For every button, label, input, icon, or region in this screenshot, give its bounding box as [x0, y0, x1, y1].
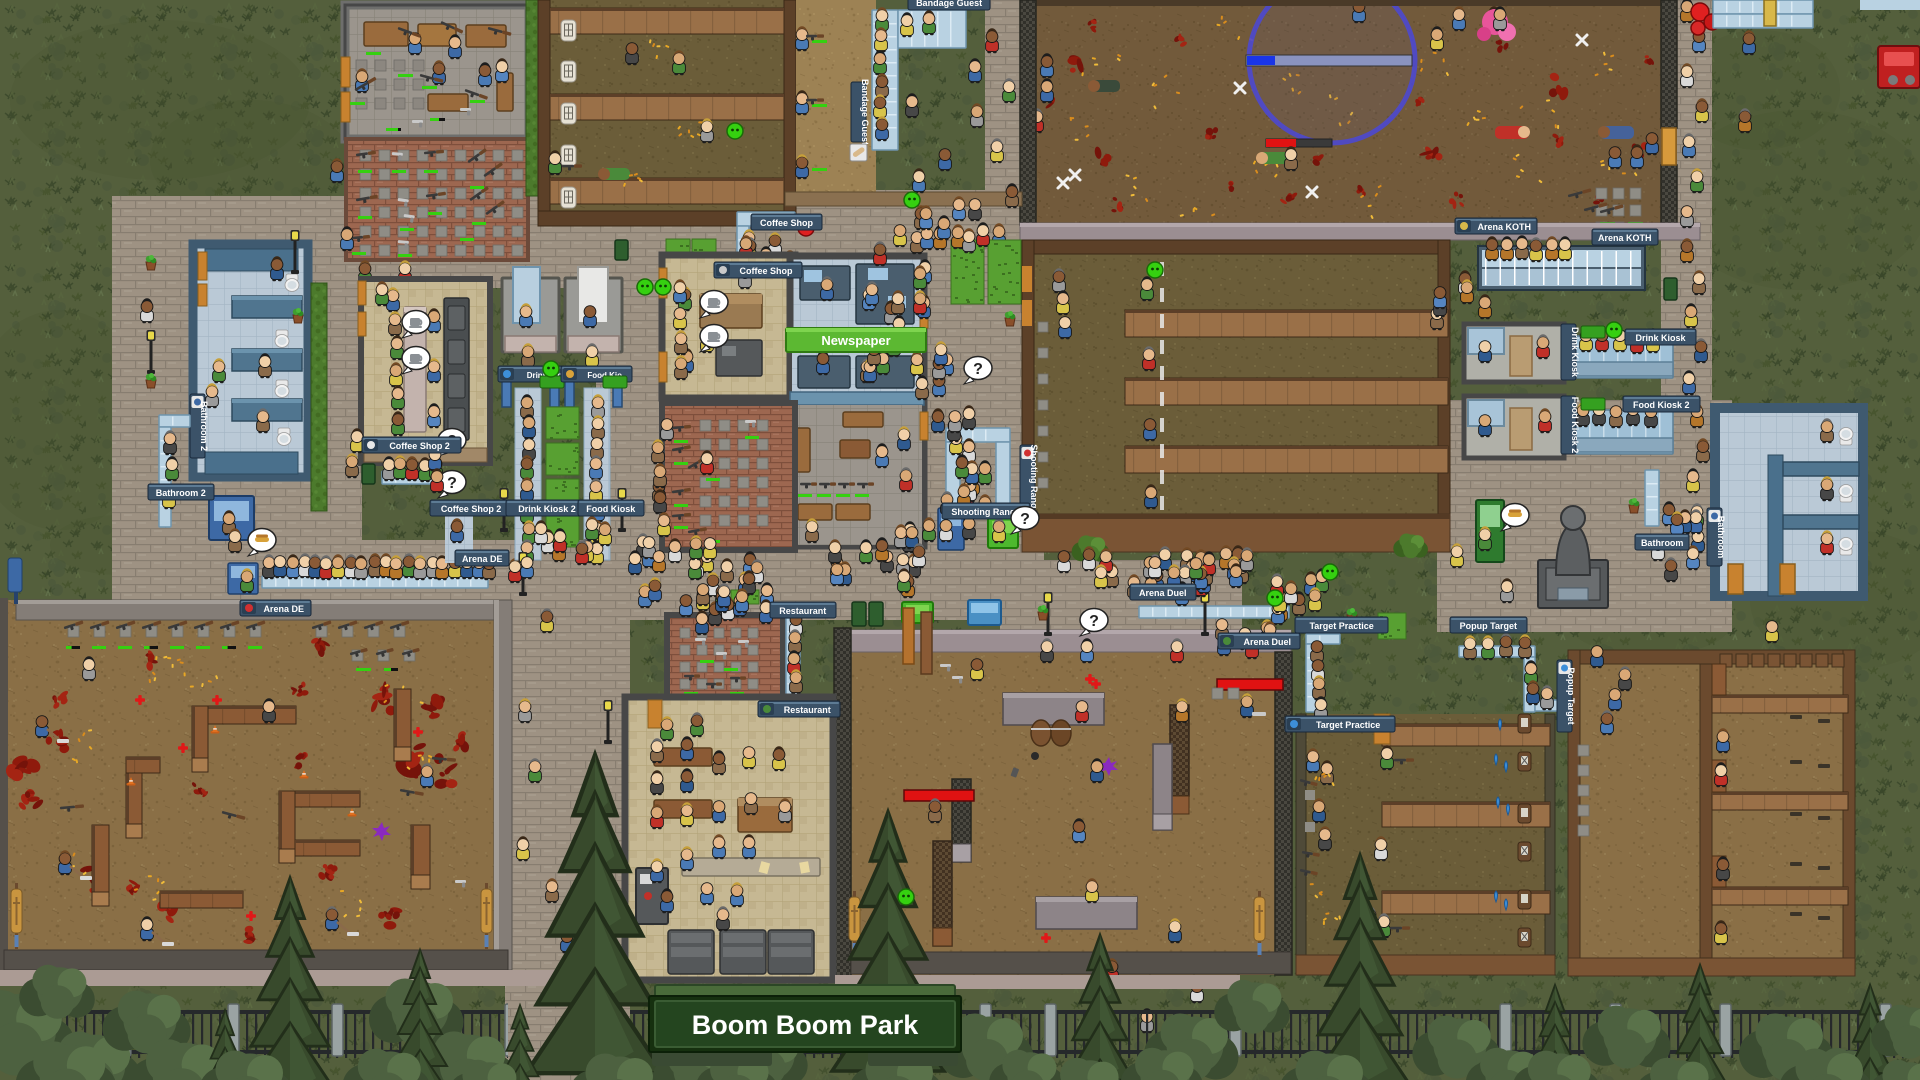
svg-text:?: ? — [1020, 511, 1030, 528]
svg-text:Arena KOTH: Arena KOTH — [1477, 222, 1531, 232]
svg-text:Arena DE: Arena DE — [263, 604, 304, 614]
svg-text:Newspaper: Newspaper — [821, 333, 890, 348]
svg-text:Coffee Shop: Coffee Shop — [760, 218, 814, 228]
svg-text:Arena Duel: Arena Duel — [1139, 588, 1187, 598]
svg-text:Drink Kiosk: Drink Kiosk — [1570, 327, 1580, 378]
svg-text:Food Kiosk 2: Food Kiosk 2 — [1633, 400, 1690, 410]
svg-text:Coffee Shop: Coffee Shop — [740, 266, 794, 276]
svg-text:Coffee Shop 2: Coffee Shop 2 — [441, 504, 502, 514]
svg-text:Bathroom: Bathroom — [1716, 516, 1726, 559]
svg-text:Target Practice: Target Practice — [1309, 621, 1373, 631]
svg-text:Food Kiosk 2: Food Kiosk 2 — [1570, 397, 1580, 454]
svg-text:Arena KOTH: Arena KOTH — [1598, 233, 1652, 243]
svg-text:Shooting Range: Shooting Range — [951, 507, 1020, 517]
svg-text:Bandage Guest: Bandage Guest — [860, 79, 870, 145]
svg-text:Bathroom 2: Bathroom 2 — [199, 401, 209, 451]
svg-text:?: ? — [447, 475, 457, 492]
svg-text:?: ? — [1089, 613, 1099, 630]
svg-text:Popup Target: Popup Target — [1566, 667, 1576, 724]
svg-text:Arena Duel: Arena Duel — [1243, 637, 1291, 647]
svg-text:Target Practice: Target Practice — [1316, 720, 1380, 730]
svg-text:Popup Target: Popup Target — [1460, 621, 1517, 631]
svg-text:Restaurant: Restaurant — [779, 606, 826, 616]
svg-text:Drink Kiosk 2: Drink Kiosk 2 — [518, 504, 576, 514]
svg-text:Shooting Range: Shooting Range — [1029, 445, 1039, 514]
svg-text:Bandage Guest: Bandage Guest — [916, 0, 982, 8]
svg-text:Drink Kiosk: Drink Kiosk — [1636, 333, 1687, 343]
svg-text:Arena DE: Arena DE — [462, 554, 503, 564]
svg-text:Coffee Shop 2: Coffee Shop 2 — [389, 441, 450, 451]
svg-text:Bathroom: Bathroom — [1641, 538, 1684, 548]
svg-text:Boom Boom Park: Boom Boom Park — [692, 1010, 920, 1040]
svg-text:Bathroom 2: Bathroom 2 — [156, 488, 206, 498]
svg-text:Food Kiosk: Food Kiosk — [586, 504, 636, 514]
svg-text:Restaurant: Restaurant — [784, 705, 831, 715]
svg-text:?: ? — [973, 361, 983, 378]
